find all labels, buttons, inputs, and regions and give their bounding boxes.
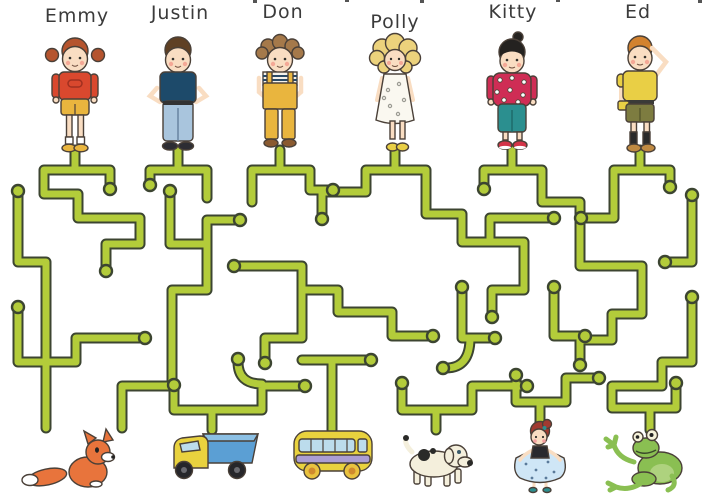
toy-dog bbox=[403, 435, 473, 486]
toy-truck bbox=[174, 434, 258, 479]
emmy-pigtail-right bbox=[92, 49, 105, 62]
child-name-label-justin: Justin bbox=[150, 2, 209, 24]
child-name-label-don: Don bbox=[262, 1, 303, 23]
polly-head bbox=[385, 50, 406, 71]
ballerina-doll bbox=[515, 420, 566, 493]
bus-windshield bbox=[358, 439, 367, 452]
ed-shirt bbox=[623, 71, 657, 101]
don-shoes bbox=[264, 139, 278, 147]
toy-bus bbox=[294, 431, 372, 479]
doll-bodice bbox=[531, 446, 549, 458]
fox-figure bbox=[22, 429, 115, 489]
child-polly bbox=[370, 34, 421, 152]
dog-legs bbox=[455, 469, 461, 483]
justin-head bbox=[166, 48, 191, 73]
emmy-shirt bbox=[59, 72, 91, 100]
doll-shoes bbox=[529, 488, 537, 493]
fox-ears bbox=[103, 429, 113, 442]
child-justin bbox=[150, 37, 206, 150]
maze-puzzle-page: Emmy Justin Don Polly Kitty Ed bbox=[0, 0, 706, 494]
ed-head bbox=[628, 46, 652, 70]
justin-shirt bbox=[160, 72, 196, 103]
don-head bbox=[268, 48, 293, 73]
fox-paw bbox=[90, 481, 102, 487]
ed-socks bbox=[630, 132, 637, 145]
don-overalls bbox=[263, 83, 297, 109]
toy-frog bbox=[606, 430, 682, 491]
emmy-head bbox=[63, 47, 88, 72]
don-hair bbox=[292, 47, 304, 59]
dog-spot bbox=[418, 449, 430, 461]
child-name-label-polly: Polly bbox=[370, 11, 419, 33]
child-name-label-kitty: Kitty bbox=[489, 1, 538, 23]
child-ed bbox=[617, 36, 666, 152]
child-don bbox=[256, 35, 304, 148]
justin-shoes bbox=[163, 142, 178, 150]
ed-boots bbox=[627, 144, 641, 152]
frog-leg bbox=[608, 483, 640, 490]
fox-tail-tip bbox=[22, 475, 38, 486]
dog-ear bbox=[445, 449, 454, 464]
child-kitty bbox=[487, 32, 537, 149]
bus-stripe bbox=[296, 455, 370, 463]
maze-network bbox=[12, 150, 698, 430]
child-emmy bbox=[46, 38, 105, 152]
maze-path-fill bbox=[18, 150, 692, 430]
frog-raised-arm bbox=[606, 437, 634, 462]
child-name-label-ed: Ed bbox=[625, 1, 651, 23]
maze-illustration: Emmy Justin Don Polly Kitty Ed bbox=[0, 0, 706, 494]
child-name-label-emmy: Emmy bbox=[45, 5, 109, 27]
emmy-pigtail-left bbox=[46, 49, 59, 62]
